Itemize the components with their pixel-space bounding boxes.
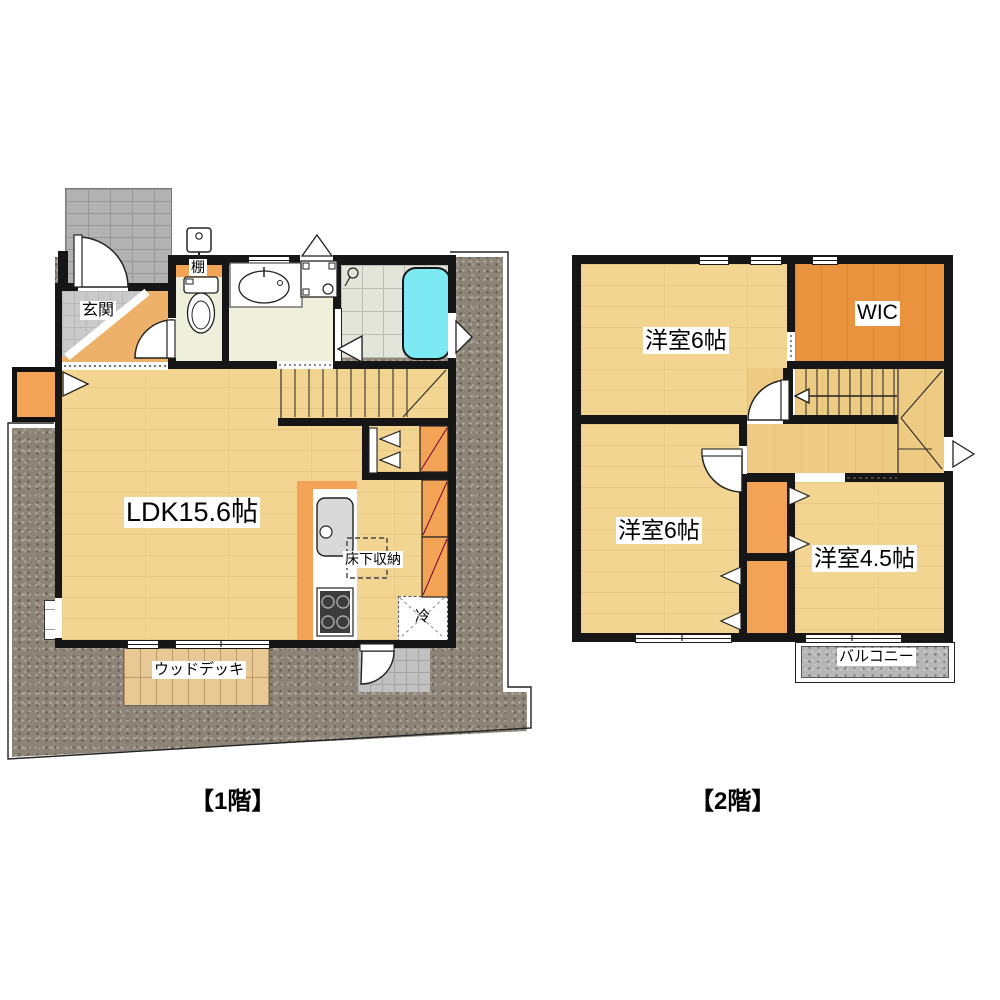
caption-floor1: 【1階】: [190, 781, 275, 816]
bedroom-small-window: [805, 634, 902, 643]
back-door-tiles: [358, 648, 430, 692]
f2-wall-upper-bottom: [572, 415, 747, 424]
f2-wall-wic-bottom: [787, 361, 953, 369]
toilet-floor: [176, 265, 222, 361]
washroom-floor: [229, 265, 333, 361]
stairs-2f-floor: [795, 368, 898, 415]
f1-wall-corner-stub: [58, 251, 68, 285]
f2-window-top3: [812, 256, 838, 265]
closet-upper: [747, 482, 787, 553]
intercom-icon: [187, 228, 211, 258]
bedroom-lower-door-opening: [739, 446, 747, 474]
label-shelf: 棚: [189, 259, 207, 276]
toilet-door-opening: [168, 318, 176, 358]
label-bedroom-lower: 洋室6帖: [616, 517, 702, 544]
bedroom-upper-door-opening: [747, 415, 783, 424]
washroom-window: [248, 256, 290, 265]
bath-window-opening: [448, 313, 456, 358]
ldk-west-window: [55, 598, 62, 638]
genkan-ldk-border: [62, 362, 168, 370]
hall-window-opening: [944, 437, 953, 471]
label-bedroom-upper: 洋室6帖: [643, 327, 729, 354]
caption-floor2: 【2階】: [690, 781, 775, 816]
f2-window-top2: [750, 256, 782, 265]
label-ldk: LDK15.6帖: [124, 497, 260, 528]
stair-landing-floor: [747, 368, 783, 415]
hall-2f-floor: [747, 424, 898, 473]
label-wic: WIC: [855, 301, 900, 326]
f1-wall-closet-bottom: [362, 472, 448, 480]
ldk-sliding-window: [175, 640, 270, 649]
label-genkan: 玄関: [80, 301, 116, 320]
f1-wall-toilet-east: [222, 255, 229, 369]
label-fridge: 冷: [413, 608, 432, 626]
floor-plan-canvas: 玄関 棚 LDK15.6帖 床下収納 冷 ウッドデッキ 【1階】 洋室6帖 WI…: [0, 0, 1000, 1000]
label-bedroom-small: 洋室4.5帖: [812, 545, 917, 572]
entrance-door-opening: [78, 283, 128, 291]
hall-window-swing: [953, 441, 974, 467]
label-floor-storage: 床下収納: [343, 551, 403, 568]
stairs-winder-floor: [898, 368, 944, 475]
bedroom-small-door-opening: [795, 473, 845, 482]
f2-wall-stairs-bottom: [790, 415, 898, 424]
bathtub: [402, 267, 451, 360]
label-wood-deck: ウッドデッキ: [152, 661, 246, 679]
closet-lower: [747, 561, 787, 633]
f2-wall-hall-bottom: [739, 473, 953, 482]
f2-wall-closet-mid: [739, 553, 795, 561]
ldk-window-small: [127, 640, 159, 649]
washroom-ldk-opening: [277, 361, 333, 369]
bath-folding-door: [334, 308, 342, 362]
f2-wall-wic-west: [787, 255, 795, 332]
label-balcony: バルコニー: [837, 648, 916, 666]
f2-wall-left: [572, 255, 581, 642]
washroom-backdoor-opening: [300, 255, 333, 265]
washroom-exterior-door-swing: [302, 235, 332, 256]
bedroom-lower-window: [635, 634, 732, 643]
entrance-porch: [65, 188, 172, 287]
f1-wall-stairs-bottom: [278, 418, 448, 426]
f1-wall-left: [55, 283, 62, 648]
f2-wall-lower-divider: [739, 482, 747, 642]
f2-window-top1: [699, 256, 729, 265]
